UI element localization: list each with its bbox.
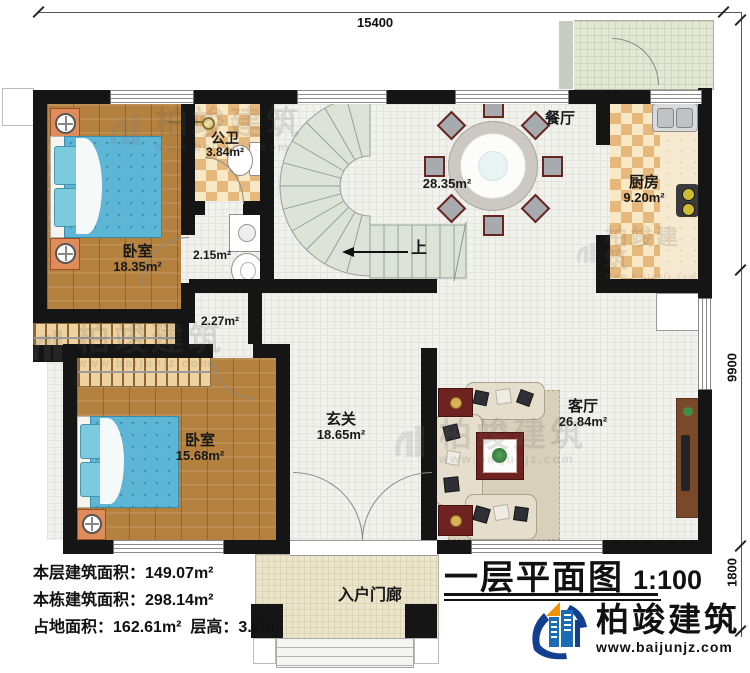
wall [195, 201, 205, 215]
bed-double [50, 136, 160, 236]
dim-top-label: 15400 [357, 15, 393, 30]
wall [222, 540, 290, 554]
bathroom-area: 3.84m² [195, 146, 255, 160]
side-table [438, 388, 473, 417]
kitchen-area: 9.20m² [608, 191, 680, 206]
window [297, 90, 387, 104]
patio-wall-strip [558, 20, 574, 90]
wall [47, 309, 181, 323]
coffee-table [476, 432, 524, 480]
living-name: 客厅 [548, 398, 618, 415]
dining-chair [542, 156, 563, 177]
tv [681, 435, 690, 491]
wall [385, 90, 455, 104]
living-area: 26.84m² [548, 415, 618, 430]
wall [596, 279, 712, 293]
wall [181, 90, 195, 235]
wall [63, 345, 77, 554]
bathroom-name: 公卫 [195, 130, 255, 146]
window [455, 90, 569, 104]
ceiling-lamp-symbol [202, 117, 215, 130]
company-logo-block: 柏竣建筑 www.baijunjz.com [526, 598, 740, 660]
wall [248, 293, 262, 344]
wall [33, 90, 47, 323]
window-sill [2, 88, 34, 126]
bedroom2-area: 15.68m² [160, 449, 240, 464]
tv-cabinet [676, 398, 700, 518]
window [113, 540, 224, 554]
bedroom2-name: 卧室 [160, 432, 240, 449]
porch-ledge [253, 638, 276, 664]
entry-door-opening [290, 540, 437, 556]
porch-name: 入户门廊 [295, 587, 445, 605]
dim-right-main-label: 9900 [725, 348, 740, 388]
company-name: 柏竣建筑 [596, 603, 740, 636]
wall [192, 90, 297, 104]
kitchen-name: 厨房 [608, 174, 680, 191]
wall [33, 345, 63, 362]
porch-steps [276, 638, 414, 668]
dining-name: 餐厅 [528, 110, 592, 127]
wall [698, 88, 712, 298]
stat-floor-area: 本层建筑面积：149.07m² [33, 560, 275, 587]
porch-pillar [405, 604, 437, 638]
window [110, 90, 194, 104]
nightstand [50, 238, 80, 270]
wall [189, 279, 437, 293]
wall [63, 344, 213, 358]
dining-chair [483, 215, 504, 236]
area-statistics: 本层建筑面积：149.07m² 本栋建筑面积：298.14m² 占地面积：162… [33, 560, 275, 641]
side-table [438, 505, 473, 536]
wall [63, 540, 113, 554]
wardrobe [77, 357, 211, 387]
wall [276, 344, 290, 554]
window [698, 298, 712, 390]
kitchen-sink [652, 103, 698, 132]
company-logo-icon [526, 598, 590, 660]
wall [698, 388, 712, 554]
wall [260, 90, 274, 293]
nightstand [77, 509, 106, 540]
company-website: www.baijunjz.com [596, 639, 740, 655]
dim-right-porch-label: 1800 [725, 553, 740, 593]
kitchen-back-step [656, 293, 700, 331]
dining-area: 28.35m² [412, 177, 482, 192]
stat-land-area: 占地面积：162.61m² 层高：3.6m [33, 614, 275, 641]
drawing-title-block: 一层平面图1:100 [444, 550, 702, 599]
stairs-up-label: 上 [411, 240, 427, 258]
drawing-title: 一层平面图 [444, 550, 624, 599]
window [650, 90, 702, 104]
hall-area: 18.65m² [305, 428, 377, 443]
utility-area: 2.15m² [185, 249, 239, 263]
dim-line-top [38, 12, 741, 13]
floor-plan: 15400 9900 1800 上 [0, 0, 750, 673]
drawing-scale: 1:100 [633, 565, 702, 596]
sofa [465, 494, 537, 540]
bedroom1-area: 18.35m² [95, 260, 180, 275]
wall [596, 90, 610, 145]
bedroom1-name: 卧室 [95, 243, 180, 260]
hall-name: 玄关 [305, 411, 377, 428]
porch-ledge [414, 638, 439, 664]
closet-area: 2.27m² [193, 315, 247, 329]
stat-building-area: 本栋建筑面积：298.14m² [33, 587, 275, 614]
